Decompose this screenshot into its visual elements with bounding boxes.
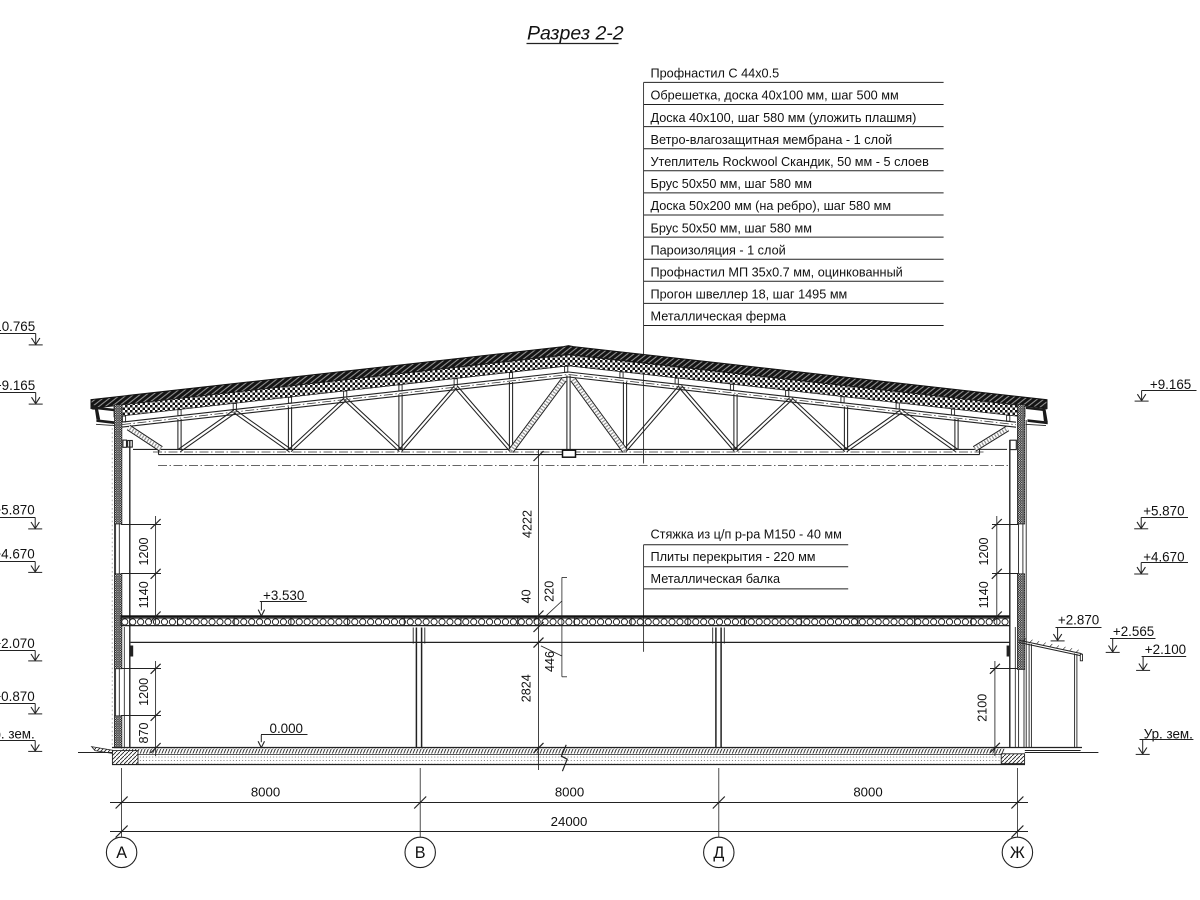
svg-text:Обрешетка, доска 40х100 мм, ша: Обрешетка, доска 40х100 мм, шаг 500 мм — [651, 89, 899, 103]
svg-text:1200: 1200 — [137, 678, 151, 706]
svg-text:+2.070: +2.070 — [0, 636, 35, 651]
svg-text:Брус 50х50 мм, шаг 580 мм: Брус 50х50 мм, шаг 580 мм — [651, 177, 812, 191]
svg-text:Плиты перекрытия - 220 мм: Плиты перекрытия - 220 мм — [651, 550, 816, 564]
svg-text:1200: 1200 — [977, 537, 991, 565]
svg-text:446: 446 — [543, 651, 557, 672]
svg-text:8000: 8000 — [853, 785, 882, 800]
svg-text:Утеплитель Rockwool Скандик, 5: Утеплитель Rockwool Скандик, 50 мм - 5 с… — [651, 155, 930, 169]
svg-text:А: А — [116, 844, 127, 862]
svg-text:Ж: Ж — [1010, 844, 1025, 862]
svg-text:Стяжка из ц/п р-ра М150 - 40 м: Стяжка из ц/п р-ра М150 - 40 мм — [651, 528, 842, 542]
svg-text:+3.530: +3.530 — [263, 588, 304, 603]
svg-text:+9.165: +9.165 — [1150, 377, 1191, 392]
svg-text:8000: 8000 — [251, 785, 280, 800]
svg-text:+5.870: +5.870 — [1143, 504, 1184, 519]
svg-text:В: В — [415, 844, 426, 862]
svg-text:Пароизоляция - 1 слой: Пароизоляция - 1 слой — [651, 243, 786, 257]
svg-text:40: 40 — [519, 589, 533, 603]
svg-text:Прогон швеллер 18, шаг 1495 мм: Прогон швеллер 18, шаг 1495 мм — [651, 288, 848, 302]
svg-text:24000: 24000 — [551, 814, 588, 829]
svg-text:870: 870 — [137, 722, 151, 743]
svg-text:+0.870: +0.870 — [0, 689, 35, 704]
svg-text:Д: Д — [713, 844, 724, 862]
svg-text:2100: 2100 — [975, 694, 989, 722]
svg-text:+4.670: +4.670 — [0, 547, 35, 562]
svg-text:+2.870: +2.870 — [1058, 612, 1099, 627]
svg-text:Ветро-влагозащитная мембрана -: Ветро-влагозащитная мембрана - 1 слой — [651, 133, 893, 147]
svg-text:Ур. зем.: Ур. зем. — [0, 726, 35, 741]
svg-text:Разрез 2-2: Разрез 2-2 — [527, 23, 624, 45]
svg-text:+2.565: +2.565 — [1113, 624, 1154, 639]
svg-text:220: 220 — [543, 581, 557, 602]
svg-text:8000: 8000 — [555, 785, 584, 800]
svg-text:+5.870: +5.870 — [0, 503, 35, 518]
svg-text:Металлическая балка: Металлическая балка — [651, 572, 782, 586]
svg-text:1200: 1200 — [137, 537, 151, 565]
svg-text:Брус 50х50 мм, шаг 580 мм: Брус 50х50 мм, шаг 580 мм — [651, 221, 812, 235]
svg-text:Доска 40х100, шаг 580 мм (улож: Доска 40х100, шаг 580 мм (уложить плашмя… — [651, 111, 917, 125]
svg-text:Профнастил С 44х0.5: Профнастил С 44х0.5 — [651, 67, 780, 81]
svg-text:1140: 1140 — [137, 581, 151, 608]
svg-text:Профнастил МП 35х0.7 мм, оцинк: Профнастил МП 35х0.7 мм, оцинкованный — [651, 266, 903, 280]
svg-text:Доска 50х200 мм (на ребро), ша: Доска 50х200 мм (на ребро), шаг 580 мм — [651, 199, 892, 213]
svg-text:2824: 2824 — [519, 674, 533, 702]
svg-text:+2.100: +2.100 — [1145, 642, 1186, 657]
svg-text:4222: 4222 — [521, 510, 535, 538]
svg-text:+9.165: +9.165 — [0, 378, 35, 393]
svg-text:Металлическая ферма: Металлическая ферма — [651, 310, 788, 324]
svg-text:+10.765: +10.765 — [0, 319, 35, 334]
svg-text:1140: 1140 — [977, 581, 991, 608]
